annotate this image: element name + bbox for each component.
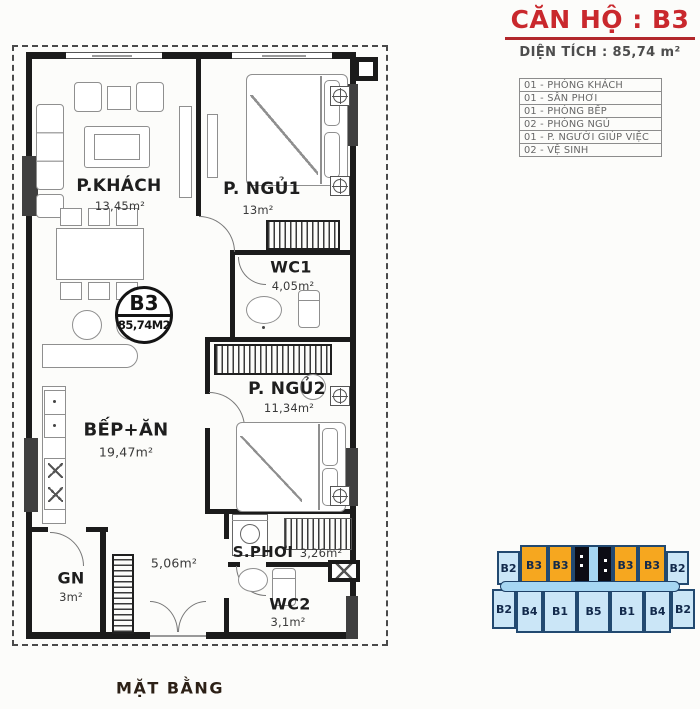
room-area-wc1: 4,05m² <box>272 279 315 293</box>
wc1-toilet-tank <box>298 300 320 301</box>
keyplan-core <box>573 545 613 585</box>
wardrobe-bed1 <box>266 220 340 250</box>
burner-icon <box>48 463 63 478</box>
wall-kitchen-bed2-upper <box>205 337 210 394</box>
washer-panel-line <box>232 520 268 521</box>
window-slider-bar <box>92 55 132 57</box>
side-table <box>107 86 131 110</box>
keyplan-unit: B1 <box>610 589 644 633</box>
bed1-headboard-line <box>320 76 322 184</box>
keyplan-corridor <box>500 581 680 592</box>
wall-wc1-left <box>230 250 235 342</box>
stool <box>72 310 102 340</box>
shoe-cabinet <box>112 554 134 634</box>
room-legend: 01 - PHÒNG KHÁCH 01 - SÂN PHƠI 01 - PHÒN… <box>519 79 662 157</box>
wall-gn-right <box>100 527 106 639</box>
room-label-sphoi: S.PHƠI <box>233 543 294 561</box>
keyplan-unit: B4 <box>516 589 543 633</box>
room-label-gn: GN <box>57 569 84 588</box>
room-label-living: P.KHÁCH <box>76 176 161 196</box>
wall-gn-top-a <box>30 527 48 532</box>
plan-caption: MẶT BẰNG <box>116 679 224 698</box>
wall-bed1-bottom <box>234 250 356 255</box>
keyplan-unit: B1 <box>543 589 577 633</box>
room-label-wc2: WC2 <box>269 595 310 614</box>
armchair <box>136 82 164 112</box>
armchair <box>74 82 102 112</box>
column <box>346 596 358 639</box>
unit-badge-area: 85,74M2 <box>116 318 172 332</box>
blanket-fold <box>240 436 302 502</box>
hall-area: 5,06m² <box>151 556 197 571</box>
bar-counter <box>42 344 138 368</box>
sink-drain <box>53 400 56 403</box>
column <box>24 438 38 512</box>
building-keyplan: B2 B3 B3 B3 B3 B2 B2 B4 B1 B5 B1 B4 B2 <box>492 537 698 637</box>
room-label-wc1: WC1 <box>270 258 311 277</box>
unit-badge-code: B3 <box>118 291 170 315</box>
keyplan-unit-b2: B2 <box>666 551 689 585</box>
window-slider-bar <box>262 55 306 57</box>
room-area-sphoi: 3,26m² <box>300 546 343 560</box>
dining-chair <box>60 208 82 226</box>
bed2-headboard-line <box>318 424 320 510</box>
wc1-toilet <box>298 290 320 328</box>
keyplan-unit-b3-highlight: B3 <box>638 545 666 585</box>
keyplan-unit-b3-highlight: B3 <box>520 545 548 585</box>
entrance-threshold <box>150 635 206 637</box>
apartment-title: CĂN HỘ : B3 <box>503 5 697 34</box>
wardrobe-bed2 <box>214 344 332 375</box>
casement-window-icon <box>330 486 350 506</box>
room-area-wc2: 3,1m² <box>270 615 305 629</box>
header: CĂN HỘ : B3 DIỆN TÍCH : 85,74 m² <box>503 5 697 60</box>
desk-bed1 <box>207 114 218 178</box>
keyplan-unit: B2 <box>492 589 516 629</box>
washer-drum-icon <box>240 524 260 544</box>
coffee-table-inner <box>94 134 140 160</box>
wc2-toilet-tank <box>272 578 296 579</box>
room-area-living: 13,45m² <box>95 199 145 213</box>
elevator-dots-icon <box>580 555 583 558</box>
legend-item: 02 - PHÒNG NGỦ <box>519 117 662 131</box>
dining-chair <box>60 282 82 300</box>
tv-cabinet <box>179 106 192 198</box>
keyplan-bottom-row: B2 B4 B1 B5 B1 B4 B2 <box>492 589 695 633</box>
wc2-sink <box>238 568 268 592</box>
sink-divider <box>44 414 66 415</box>
keyplan-unit: B4 <box>644 589 671 633</box>
room-area-bed1: 13m² <box>242 203 273 217</box>
wall-kitchen-bed2-lower <box>205 428 210 514</box>
dining-chair <box>88 282 110 300</box>
casement-window-icon <box>330 86 350 106</box>
wall-wc1-bottom <box>205 337 356 342</box>
legend-item: 01 - PHÒNG KHÁCH <box>519 78 662 92</box>
wall-hall-right-lower <box>224 598 229 639</box>
wc1-sink-drain <box>262 326 265 329</box>
wc1-sink <box>246 296 282 324</box>
sink-drain <box>53 424 56 427</box>
wall-living-bed1 <box>196 52 201 216</box>
room-label-kitchen: BẾP+ĂN <box>83 420 168 441</box>
legend-item: 01 - PHÒNG BẾP <box>519 104 662 118</box>
dining-table <box>56 228 144 280</box>
room-area-bed2: 11,34m² <box>264 401 314 415</box>
room-label-bed1: P. NGỦ1 <box>223 179 301 199</box>
keyplan-top-row: B2 B3 B3 B3 B3 B2 <box>497 545 689 585</box>
blanket-fold <box>250 95 318 175</box>
keyplan-unit: B2 <box>671 589 695 629</box>
legend-item: 01 - P. NGƯỜI GIÚP VIỆC <box>519 130 662 144</box>
fixed-window-x-icon <box>328 560 360 582</box>
room-area-kitchen: 19,47m² <box>99 445 153 460</box>
corner-column-box <box>354 57 378 81</box>
sofa <box>36 104 64 190</box>
room-label-bed2: P. NGỦ2 <box>248 379 326 399</box>
wall-left <box>26 52 32 639</box>
keyplan-unit-b3-highlight: B3 <box>613 545 638 585</box>
legend-item: 02 - VỆ SINH <box>519 143 662 157</box>
unit-badge-divider <box>118 314 170 317</box>
keyplan-unit: B5 <box>577 589 610 633</box>
unit-badge: B3 85,74M2 <box>115 286 173 344</box>
apartment-area-label: DIỆN TÍCH : 85,74 m² <box>503 45 697 60</box>
keyplan-unit-b3-highlight: B3 <box>548 545 573 585</box>
legend-item: 01 - SÂN PHƠI <box>519 91 662 105</box>
wall-hall-right-upper <box>224 509 229 539</box>
casement-window-icon <box>330 386 350 406</box>
pillow <box>324 132 340 178</box>
room-area-gn: 3m² <box>59 590 83 604</box>
keyplan-unit-b2: B2 <box>497 551 520 585</box>
pillow <box>322 428 338 466</box>
casement-window-icon <box>330 176 350 196</box>
burner-icon <box>48 487 63 502</box>
title-underline <box>505 37 695 40</box>
